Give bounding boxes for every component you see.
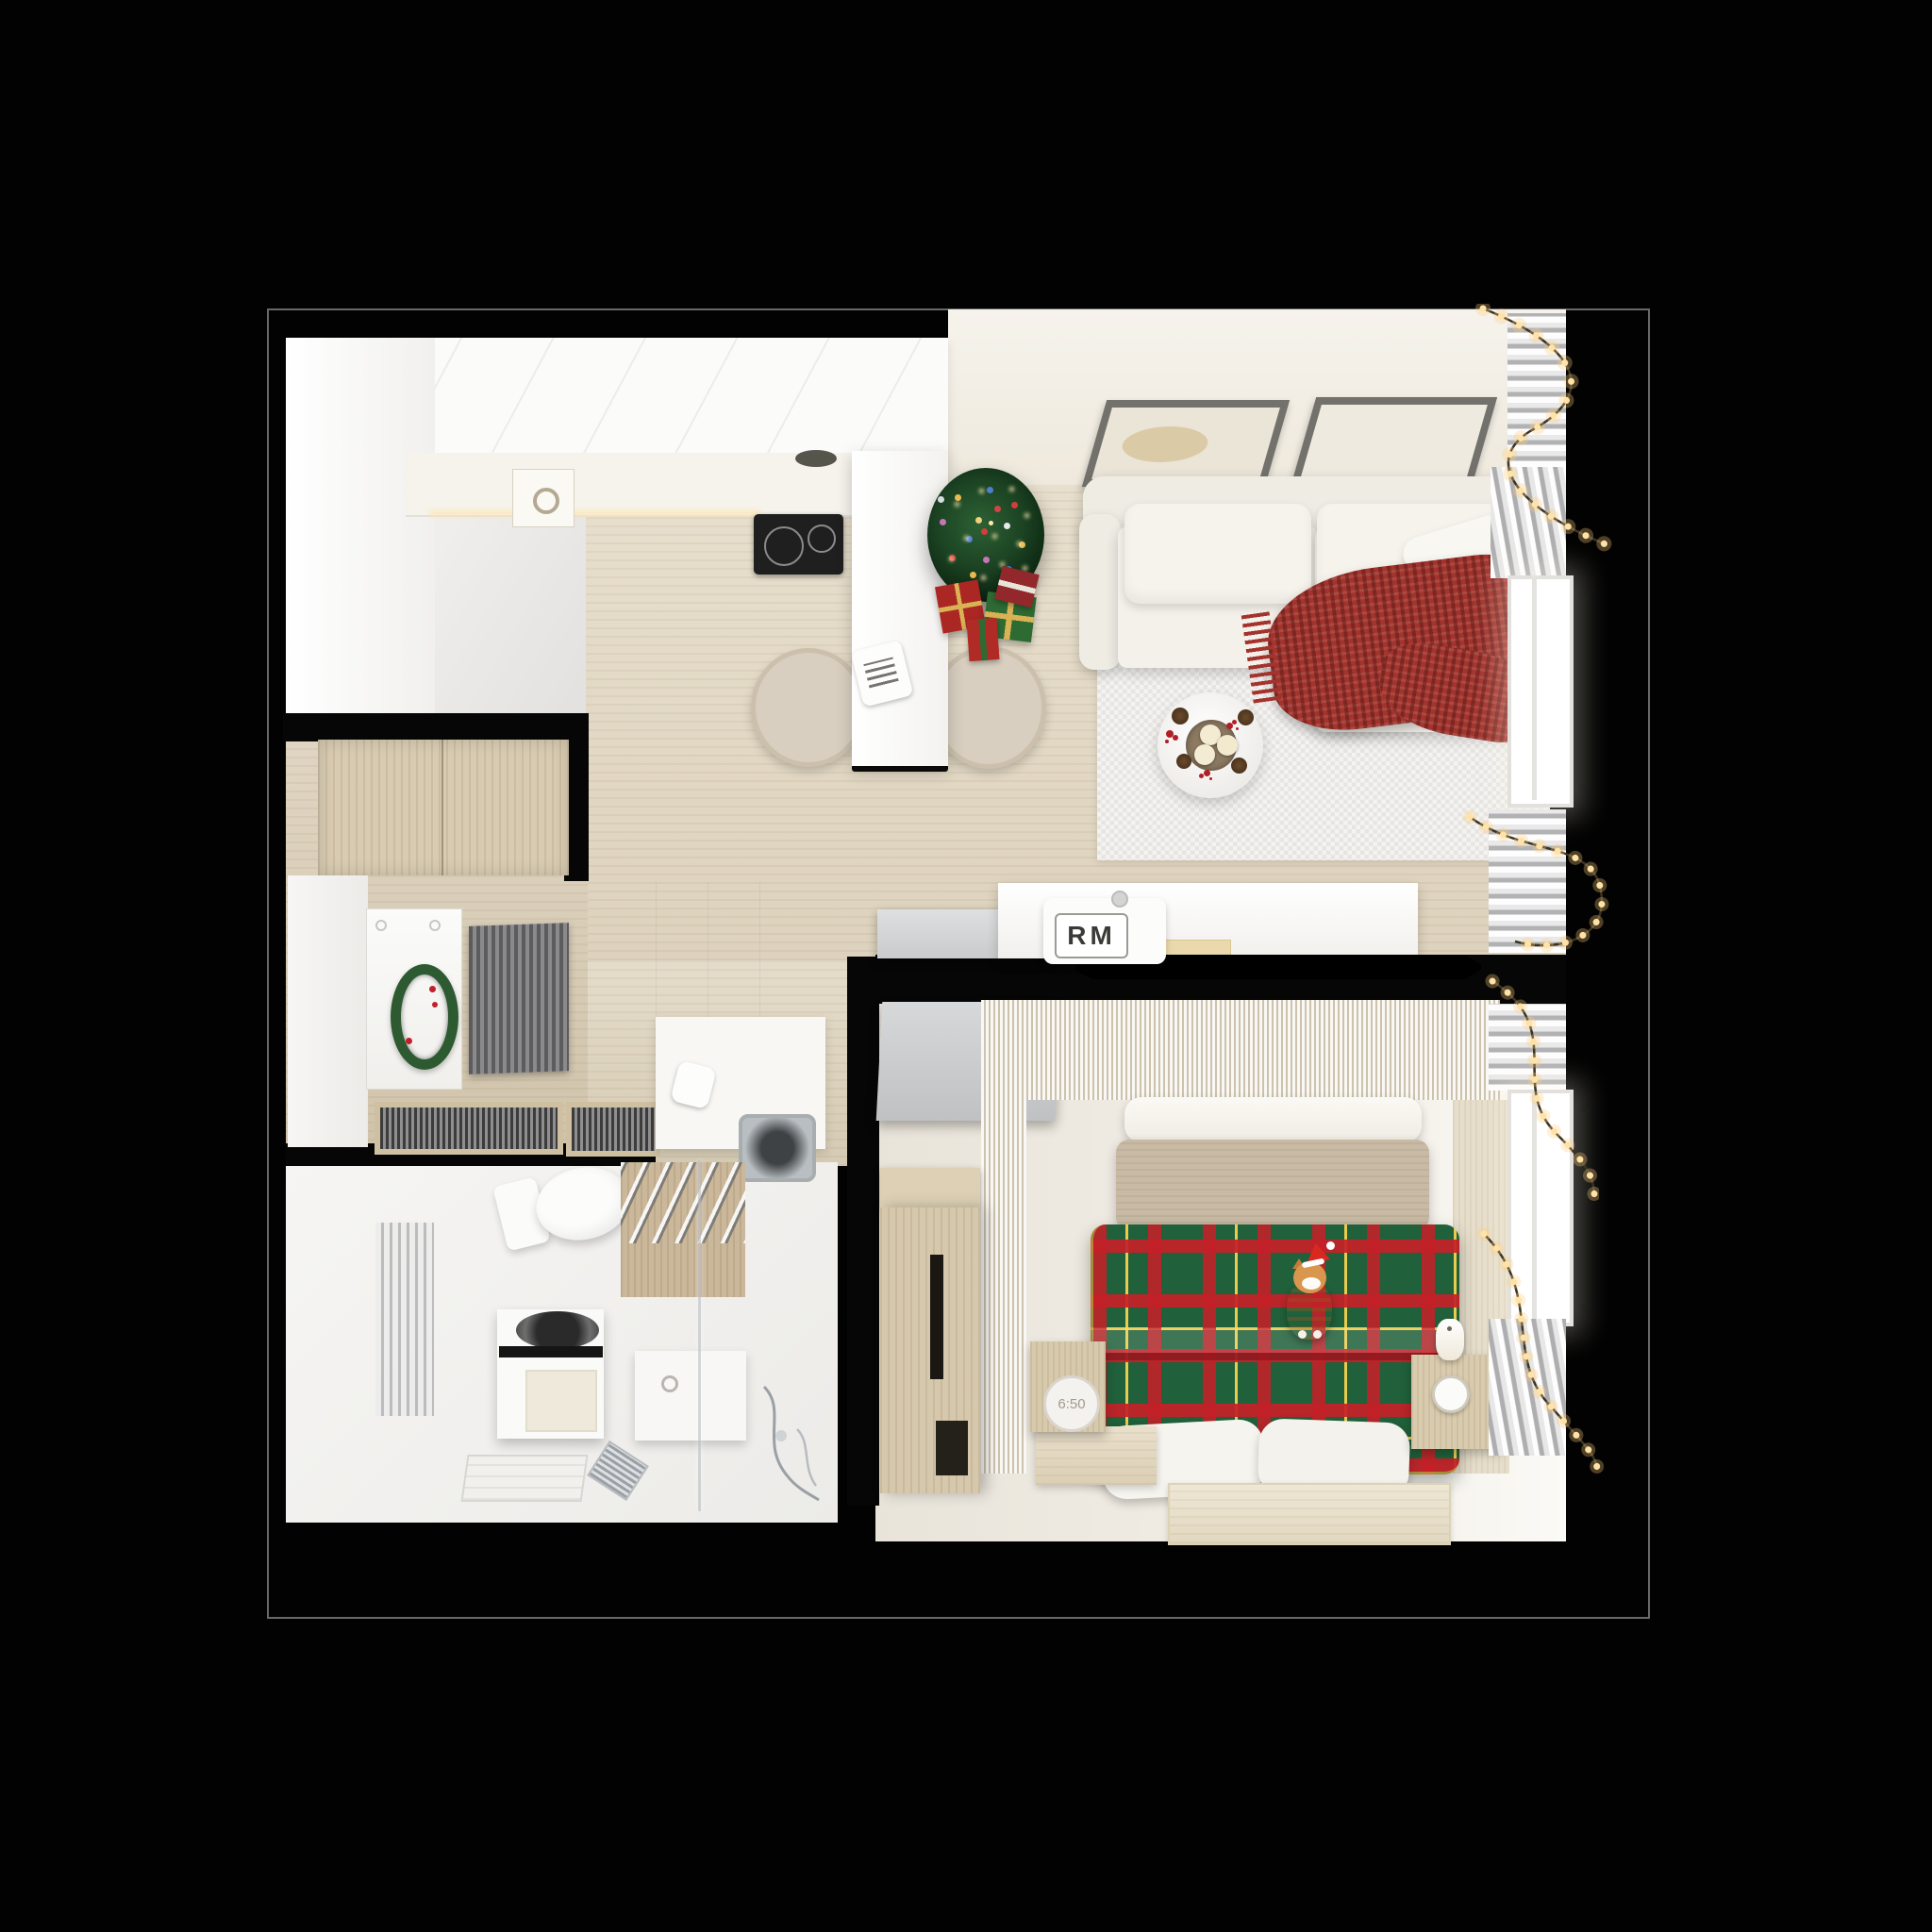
candle-3	[1194, 744, 1215, 765]
washer-top-rim	[499, 1346, 603, 1357]
wreath-berry-2	[432, 1002, 438, 1008]
bedroom-rug	[1168, 1483, 1451, 1545]
tree-lights	[989, 521, 993, 525]
wall-bedroom-left	[847, 957, 879, 1506]
floor-grate-right	[566, 1102, 660, 1157]
towel-radiator	[375, 1223, 434, 1416]
sofa-back-cushion-left	[1124, 504, 1311, 604]
hall-left-wall-band	[288, 875, 368, 1147]
vanity-cabinet-faces	[656, 882, 811, 1019]
window-living	[1507, 575, 1574, 808]
santa-hat-pom	[1326, 1241, 1335, 1250]
burner-small	[808, 525, 836, 553]
bar-chair-right	[931, 646, 1046, 769]
bar-chair-left	[751, 648, 866, 767]
berry-sprig-2	[1226, 723, 1233, 729]
square-vessel-sink	[739, 1114, 816, 1182]
rm-badge-label: RM	[1067, 921, 1116, 951]
bedside-clock: 6:50	[1043, 1375, 1100, 1432]
slat-wall-left-strip	[981, 1100, 1026, 1474]
kitchen-upper-cabinets	[429, 338, 948, 458]
cat-muzzle	[1302, 1277, 1321, 1290]
candle-wick	[1447, 1326, 1452, 1331]
wood-platform	[1036, 1426, 1157, 1485]
kitchen-island	[852, 451, 948, 766]
pinecone-3	[1176, 754, 1191, 769]
sofa-armrest-left	[1079, 514, 1121, 670]
christmas-wreath	[391, 964, 458, 1070]
bath-mat	[460, 1455, 588, 1502]
headboard-cushion	[1116, 1140, 1429, 1230]
washer-drum	[516, 1311, 599, 1349]
entry-closet-wood-doors	[318, 740, 569, 875]
garland-bedroom-lower	[1457, 1217, 1604, 1476]
extractor-hood	[795, 450, 837, 467]
gift-small-striped	[967, 618, 1000, 661]
candle-2	[1217, 735, 1238, 756]
duvet-fold-highlight	[1092, 1328, 1455, 1353]
headboard-shelf	[1124, 1097, 1422, 1142]
sink-drain	[533, 488, 559, 514]
wardrobe-lower-slot	[936, 1421, 968, 1475]
cat-with-santa-hat	[1279, 1255, 1340, 1349]
pinecone-1	[1172, 708, 1189, 724]
pinecone-2	[1238, 709, 1254, 725]
washer-door-panel	[525, 1370, 597, 1432]
door-hinge-top	[375, 920, 387, 931]
bath-drawer-unit	[635, 1351, 746, 1441]
floor-grate-left	[375, 1102, 563, 1155]
garland-bedroom-upper	[1460, 800, 1611, 965]
door-hinge-bottom	[429, 920, 441, 931]
headboard-wall-slats	[981, 1000, 1500, 1100]
berry-sprig-1	[1166, 730, 1174, 738]
garland-living-top	[1464, 304, 1615, 587]
cat-paw-left	[1298, 1330, 1307, 1339]
wreath-berry-1	[429, 986, 436, 992]
glass-shower-partition	[698, 1160, 701, 1511]
tree-ornaments	[981, 528, 988, 535]
burner-large	[764, 526, 804, 566]
kitchen-left-cabinets	[286, 338, 435, 715]
shower-fittings	[745, 1377, 840, 1509]
garland-bedroom-mid	[1453, 972, 1599, 1203]
under-cabinet-light	[429, 509, 759, 517]
wardrobe-open-slot	[930, 1255, 943, 1379]
berry-sprig-3	[1204, 770, 1210, 776]
rm-badge: RM	[1055, 913, 1128, 958]
rm-speaker-sensor	[1111, 891, 1128, 908]
apartment-top-down-render: RM 6:50	[0, 0, 1932, 1932]
wreath-berry-3	[406, 1038, 412, 1044]
clock-display: 6:50	[1058, 1396, 1085, 1412]
closet-door-seam	[441, 740, 443, 875]
wall-hall-top	[283, 713, 587, 741]
pinecone-4	[1231, 758, 1247, 774]
towel-chrome-bars	[621, 1162, 745, 1243]
kitchen-tall-cabinet-side	[435, 514, 586, 715]
wardrobe-top	[880, 1168, 980, 1207]
striped-doormat	[469, 923, 569, 1074]
cat-paw-right	[1313, 1330, 1322, 1339]
duvet-fold-shadow	[1092, 1353, 1455, 1360]
drawer-handle	[661, 1375, 678, 1392]
window-living-mullion	[1532, 575, 1537, 800]
